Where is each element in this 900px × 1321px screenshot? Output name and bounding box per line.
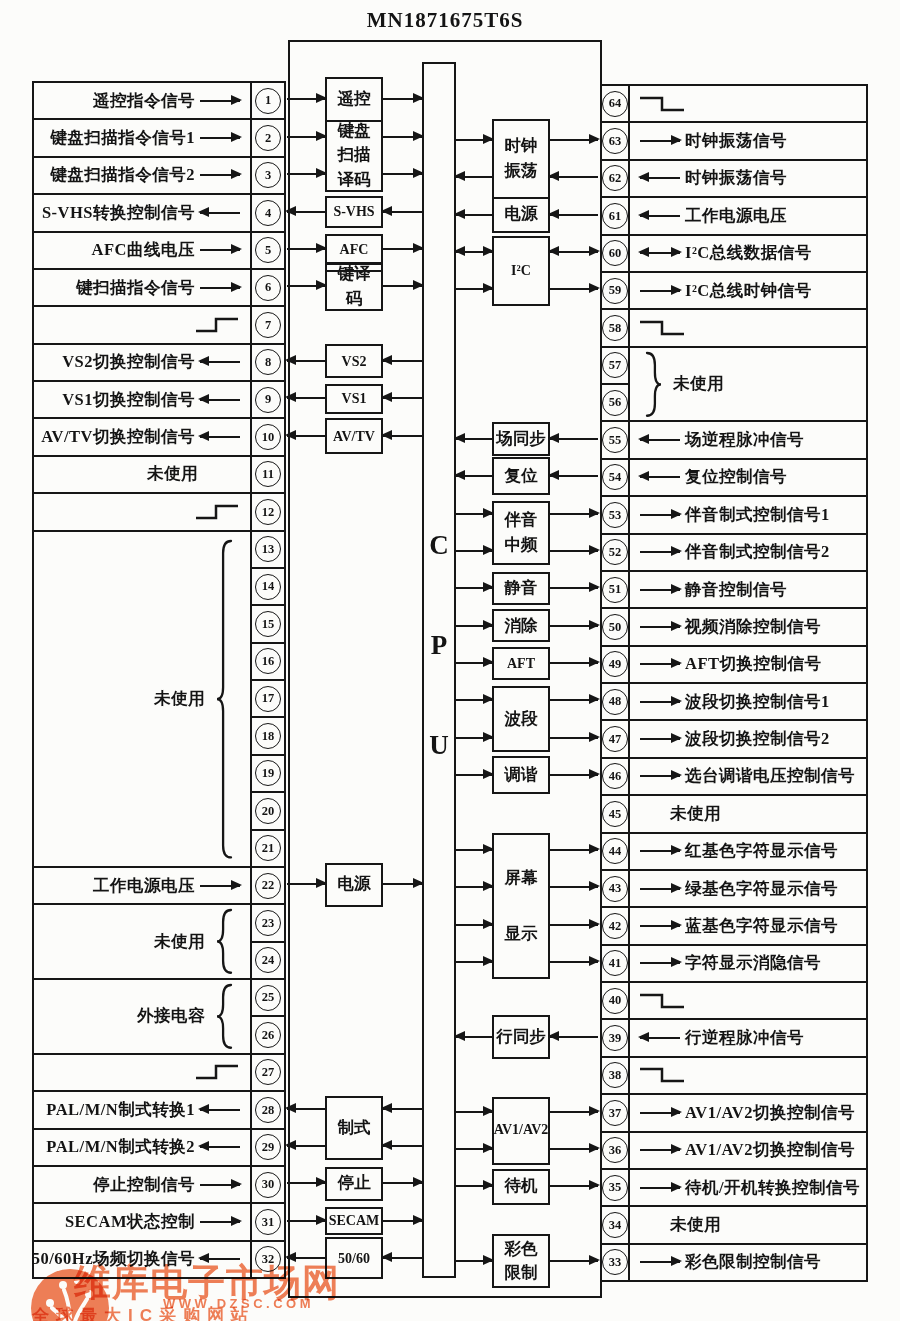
signal-arrow <box>287 360 325 362</box>
pin-number-cell: 63 <box>600 121 630 160</box>
cpu-letter-u: U <box>424 730 454 761</box>
pin-number: 16 <box>255 648 281 674</box>
signal-arrow <box>640 1187 680 1189</box>
pin-number: 64 <box>602 91 628 117</box>
pin-number: 36 <box>602 1137 628 1163</box>
pin-label-cell: 键扫描指令信号 <box>32 268 252 307</box>
pin-number-cell: 54 <box>600 458 630 497</box>
pin-label: AV/TV切换控制信号 <box>41 426 195 448</box>
pin-number: 58 <box>602 315 628 341</box>
pin-label-cell: 键盘扫描指令信号2 <box>32 156 252 195</box>
pin-label: 时钟振荡信号 <box>685 167 787 189</box>
signal-arrow <box>456 961 492 963</box>
pin-label: PAL/M/N制式转换2 <box>46 1136 195 1158</box>
function-block: VS2 <box>325 344 383 378</box>
signal-arrow <box>640 1261 680 1263</box>
signal-arrow <box>550 139 598 141</box>
pin-label-cell: 静音控制信号 <box>628 570 868 609</box>
pin-number-cell: 19 <box>250 754 286 793</box>
signal-arrow <box>550 1185 598 1187</box>
signal-arrow <box>550 176 598 178</box>
pin-number-cell: 15 <box>250 604 286 643</box>
pin-number-cell: 52 <box>600 533 630 572</box>
signal-arrow <box>550 1036 598 1038</box>
pin-number: 46 <box>602 763 628 789</box>
pin-number-cell: 51 <box>600 570 630 609</box>
pin-label: 绿基色字符显示信号 <box>685 878 838 900</box>
signal-arrow <box>287 435 325 437</box>
signal-arrow <box>640 775 680 777</box>
pin-number: 9 <box>255 387 281 413</box>
signal-arrow <box>456 774 492 776</box>
pin-number: 49 <box>602 651 628 677</box>
pin-number: 59 <box>602 278 628 304</box>
pin-number-cell: 56 <box>600 383 630 422</box>
chip-title: MN1871675T6S <box>288 8 602 33</box>
pin-label: 未使用 <box>673 373 724 395</box>
signal-arrow <box>383 285 422 287</box>
pin-label: 场逆程脉冲信号 <box>685 429 804 451</box>
signal-arrow <box>287 1257 325 1259</box>
pin-number: 15 <box>255 611 281 637</box>
signal-arrow <box>383 435 422 437</box>
pin-label: 复位控制信号 <box>685 466 787 488</box>
pin-number-cell: 50 <box>600 607 630 646</box>
pin-label: 波段切换控制信号2 <box>685 728 830 750</box>
pin-label-cell: 彩色限制控制信号 <box>628 1243 868 1282</box>
signal-arrow <box>456 886 492 888</box>
pin-number: 22 <box>255 873 281 899</box>
signal-arrow <box>456 924 492 926</box>
group-brace-icon <box>215 539 233 859</box>
signal-arrow <box>550 774 598 776</box>
signal-arrow <box>640 925 680 927</box>
pin-number-cell: 25 <box>250 978 286 1017</box>
signal-arrow <box>456 176 492 178</box>
pin-label-cell <box>32 305 252 344</box>
signal-arrow <box>640 290 680 292</box>
signal-arrow <box>200 1184 240 1186</box>
pin-number: 21 <box>255 835 281 861</box>
pin-label: AV1/AV2切换控制信号 <box>685 1102 855 1124</box>
pin-number-cell: 29 <box>250 1128 286 1167</box>
pin-number-cell: 55 <box>600 420 630 459</box>
pin-number-cell: 57 <box>600 346 630 385</box>
signal-arrow <box>456 737 492 739</box>
pin-label: SECAM状态控制 <box>65 1211 195 1233</box>
signal-arrow <box>383 1220 422 1222</box>
signal-arrow <box>200 249 240 251</box>
pin-number: 57 <box>602 352 628 378</box>
pin-number-cell: 62 <box>600 159 630 198</box>
function-block: 复位 <box>492 457 550 495</box>
signal-arrow <box>287 285 325 287</box>
pin-number: 12 <box>255 499 281 525</box>
function-block: 行同步 <box>492 1015 550 1059</box>
signal-arrow <box>456 513 492 515</box>
function-block: 调谐 <box>492 756 550 794</box>
signal-arrow <box>550 288 598 290</box>
pin-label-cell: PAL/M/N制式转换1 <box>32 1090 252 1129</box>
pin-label-cell: 行逆程脉冲信号 <box>628 1018 868 1057</box>
pin-number-cell: 49 <box>600 645 630 684</box>
pin-label: 蓝基色字符显示信号 <box>685 915 838 937</box>
pin-label-cell: 场逆程脉冲信号 <box>628 420 868 459</box>
pin-number-cell: 23 <box>250 903 286 942</box>
pin-label-cell: 字符显示消隐信号 <box>628 944 868 983</box>
signal-arrow <box>550 886 598 888</box>
function-block: 时钟 振荡 <box>492 119 550 199</box>
pin-label-cell: VS2切换控制信号 <box>32 343 252 382</box>
signal-arrow <box>640 626 680 628</box>
pin-number: 33 <box>602 1249 628 1275</box>
cpu-letter-c: C <box>424 530 454 561</box>
pin-number-cell: 58 <box>600 308 630 347</box>
pin-number-cell: 14 <box>250 567 286 606</box>
pin-label: 彩色限制控制信号 <box>685 1251 821 1273</box>
signal-arrow <box>456 1185 492 1187</box>
signal-arrow <box>200 885 240 887</box>
pin-number: 61 <box>602 203 628 229</box>
pin-label-cell: AV1/AV2切换控制信号 <box>628 1131 868 1170</box>
pin-number: 25 <box>255 985 281 1011</box>
pin-number: 56 <box>602 390 628 416</box>
pin-number: 26 <box>255 1022 281 1048</box>
pin-label-cell: AV1/AV2切换控制信号 <box>628 1093 868 1132</box>
pin-label-cell: 时钟振荡信号 <box>628 121 868 160</box>
signal-arrow <box>550 662 598 664</box>
pin-label: VS1切换控制信号 <box>62 389 195 411</box>
pin-label-cell: 时钟振荡信号 <box>628 159 868 198</box>
cpu-bar: C P U <box>422 62 456 1278</box>
pin-label: 伴音制式控制信号2 <box>685 541 830 563</box>
pin-label-cell <box>628 84 868 123</box>
signal-arrow <box>640 1037 680 1039</box>
pin-label: 停止控制信号 <box>93 1174 195 1196</box>
function-block: 彩色 限制 <box>492 1234 550 1288</box>
pin-label-cell: 50/60Hz场频切换信号 <box>32 1240 252 1279</box>
pin-number: 27 <box>255 1059 281 1085</box>
signal-arrow <box>640 701 680 703</box>
pin-label: 键盘扫描指令信号1 <box>50 127 195 149</box>
pin-label-cell: 工作电源电压 <box>32 866 252 905</box>
pin-label-cell: PAL/M/N制式转换2 <box>32 1128 252 1167</box>
diagram-canvas: MN1871675T6S 遥控指令信号1键盘扫描指令信号12键盘扫描指令信号23… <box>0 0 900 1321</box>
signal-arrow <box>456 625 492 627</box>
pin-label-cell <box>628 1056 868 1095</box>
function-block: I²C <box>492 236 550 306</box>
pin-label-cell <box>628 308 868 347</box>
pin-label: AFC曲线电压 <box>92 239 195 261</box>
signal-arrow <box>456 849 492 851</box>
pin-number-cell: 21 <box>250 829 286 868</box>
pin-number-cell: 28 <box>250 1090 286 1129</box>
pin-label: 键扫描指令信号 <box>76 277 195 299</box>
signal-arrow <box>640 1149 680 1151</box>
pin-number-cell: 9 <box>250 380 286 419</box>
pin-number-cell: 48 <box>600 682 630 721</box>
function-block: 电源 <box>492 197 550 233</box>
pin-number: 42 <box>602 913 628 939</box>
pin-number: 63 <box>602 128 628 154</box>
function-block: 静音 <box>492 572 550 605</box>
pin-number: 53 <box>602 502 628 528</box>
pin-label-cell: 外接电容 <box>32 978 252 1055</box>
pin-number-cell: 3 <box>250 156 286 195</box>
pin-label: I²C总线时钟信号 <box>685 280 812 302</box>
pin-number: 45 <box>602 801 628 827</box>
signal-arrow <box>383 1182 422 1184</box>
signal-arrow <box>640 514 680 516</box>
signal-arrow <box>456 251 492 253</box>
signal-arrow <box>383 1145 422 1147</box>
signal-arrow <box>550 1148 598 1150</box>
pin-number: 19 <box>255 760 281 786</box>
pin-number: 32 <box>255 1246 281 1272</box>
pin-number-cell: 36 <box>600 1131 630 1170</box>
signal-arrow <box>383 173 422 175</box>
pin-number: 51 <box>602 577 628 603</box>
signal-arrow <box>383 211 422 213</box>
pin-label-cell: VS1切换控制信号 <box>32 380 252 419</box>
pin-label-cell <box>32 1053 252 1092</box>
function-block: 消除 <box>492 609 550 642</box>
pin-number-cell: 7 <box>250 305 286 344</box>
function-block: AFC <box>325 234 383 264</box>
signal-arrow <box>456 139 492 141</box>
pin-number: 40 <box>602 988 628 1014</box>
pin-number: 39 <box>602 1025 628 1051</box>
pin-number: 3 <box>255 162 281 188</box>
pin-number: 62 <box>602 165 628 191</box>
function-block: AFT <box>492 647 550 680</box>
pin-label-cell: 未使用 <box>628 1205 868 1244</box>
signal-arrow <box>383 360 422 362</box>
signal-arrow <box>640 738 680 740</box>
signal-arrow <box>287 136 325 138</box>
pin-number: 31 <box>255 1209 281 1235</box>
pin-label-cell: 遥控指令信号 <box>32 81 252 120</box>
pin-number-cell: 61 <box>600 196 630 235</box>
function-block: SECAM <box>325 1207 383 1235</box>
pin-label: 时钟振荡信号 <box>685 130 787 152</box>
pin-number: 60 <box>602 240 628 266</box>
signal-arrow <box>456 438 492 440</box>
signal-arrow <box>550 699 598 701</box>
pin-number-cell: 41 <box>600 944 630 983</box>
signal-arrow <box>287 248 325 250</box>
pin-number: 13 <box>255 536 281 562</box>
pulse-waveform-icon <box>638 91 686 117</box>
pin-label-cell: 波段切换控制信号1 <box>628 682 868 721</box>
pin-number-cell: 45 <box>600 794 630 833</box>
signal-arrow <box>200 100 240 102</box>
pin-label: 静音控制信号 <box>685 579 787 601</box>
pin-number-cell: 64 <box>600 84 630 123</box>
pin-number: 17 <box>255 686 281 712</box>
pulse-waveform-icon <box>638 315 686 341</box>
function-block: VS1 <box>325 384 383 414</box>
pin-number: 37 <box>602 1100 628 1126</box>
pin-number-cell: 2 <box>250 118 286 157</box>
pin-number: 50 <box>602 614 628 640</box>
pulse-waveform-icon <box>638 1062 686 1088</box>
watermark-slogan-text: 全球最大IC采购网站 <box>32 1304 255 1321</box>
pin-number: 6 <box>255 275 281 301</box>
pin-label: 未使用 <box>147 463 198 485</box>
pin-label: VS2切换控制信号 <box>62 351 195 373</box>
function-block: S-VHS <box>325 196 383 228</box>
signal-arrow <box>640 962 680 964</box>
pin-number: 23 <box>255 910 281 936</box>
signal-arrow <box>640 252 680 254</box>
signal-arrow <box>456 1036 492 1038</box>
pin-label: 待机/开机转换控制信号 <box>685 1177 860 1199</box>
pin-label: 未使用 <box>154 931 205 953</box>
signal-arrow <box>640 589 680 591</box>
pulse-waveform-icon <box>194 1059 242 1085</box>
pin-number: 34 <box>602 1212 628 1238</box>
pin-number: 44 <box>602 838 628 864</box>
function-block: AV/TV <box>325 418 383 454</box>
signal-arrow <box>456 1260 492 1262</box>
pin-number-cell: 6 <box>250 268 286 307</box>
pin-number-cell: 38 <box>600 1056 630 1095</box>
signal-arrow <box>640 177 680 179</box>
signal-arrow <box>550 924 598 926</box>
pin-label: S-VHS转换控制信号 <box>42 202 195 224</box>
pin-number-cell: 16 <box>250 642 286 681</box>
signal-arrow <box>456 587 492 589</box>
signal-arrow <box>456 1111 492 1113</box>
pulse-waveform-icon <box>194 312 242 338</box>
pin-number: 18 <box>255 723 281 749</box>
pin-number-cell: 18 <box>250 716 286 755</box>
pin-label: 选台调谐电压控制信号 <box>685 765 855 787</box>
signal-arrow <box>456 214 492 216</box>
signal-arrow <box>200 1221 240 1223</box>
pin-number: 30 <box>255 1172 281 1198</box>
pin-number: 43 <box>602 876 628 902</box>
pin-label-cell: S-VHS转换控制信号 <box>32 193 252 232</box>
pin-label: 工作电源电压 <box>685 205 787 227</box>
pin-number: 2 <box>255 125 281 151</box>
pin-number-cell: 35 <box>600 1168 630 1207</box>
pin-number: 10 <box>255 424 281 450</box>
pin-number: 7 <box>255 312 281 338</box>
signal-arrow <box>640 476 680 478</box>
function-block: 停止 <box>325 1167 383 1201</box>
signal-arrow <box>550 550 598 552</box>
signal-arrow <box>456 550 492 552</box>
pin-number: 54 <box>602 464 628 490</box>
pin-number-cell: 53 <box>600 495 630 534</box>
pin-number: 1 <box>255 88 281 114</box>
signal-arrow <box>383 883 422 885</box>
pin-label-cell: SECAM状态控制 <box>32 1202 252 1241</box>
signal-arrow <box>550 849 598 851</box>
pin-label: PAL/M/N制式转换1 <box>46 1099 195 1121</box>
signal-arrow <box>456 1148 492 1150</box>
signal-arrow <box>287 397 325 399</box>
signal-arrow <box>200 287 240 289</box>
pin-number-cell: 33 <box>600 1243 630 1282</box>
signal-arrow <box>640 888 680 890</box>
pin-number: 20 <box>255 798 281 824</box>
signal-arrow <box>287 173 325 175</box>
pin-number-cell: 44 <box>600 832 630 871</box>
pin-number: 41 <box>602 950 628 976</box>
pin-label-cell: 蓝基色字符显示信号 <box>628 906 868 945</box>
signal-arrow <box>550 1111 598 1113</box>
signal-arrow <box>200 361 240 363</box>
function-block: 伴音 中频 <box>492 501 550 565</box>
pin-label-cell: 伴音制式控制信号1 <box>628 495 868 534</box>
function-block: 电源 <box>325 863 383 907</box>
pin-label: 50/60Hz场频切换信号 <box>32 1248 195 1270</box>
group-brace-icon <box>645 351 663 418</box>
signal-arrow <box>383 397 422 399</box>
signal-arrow <box>383 98 422 100</box>
signal-arrow <box>383 136 422 138</box>
group-brace-icon <box>215 983 233 1050</box>
pin-label: 伴音制式控制信号1 <box>685 504 830 526</box>
signal-arrow <box>550 625 598 627</box>
pin-number-cell: 5 <box>250 231 286 270</box>
pin-number-cell: 59 <box>600 271 630 310</box>
group-brace-icon <box>215 908 233 975</box>
pin-label-cell: 未使用 <box>628 794 868 833</box>
pin-label-cell: 键盘扫描指令信号1 <box>32 118 252 157</box>
watermark-url-text: WWW.DZSC.COM <box>163 1296 314 1311</box>
pin-label: 未使用 <box>670 803 721 825</box>
pin-number-cell: 32 <box>250 1240 286 1279</box>
pin-label-cell <box>628 981 868 1020</box>
pin-label-cell: 伴音制式控制信号2 <box>628 533 868 572</box>
pin-label-cell: I²C总线时钟信号 <box>628 271 868 310</box>
signal-arrow <box>456 475 492 477</box>
pin-label-cell: 视频消除控制信号 <box>628 607 868 646</box>
pin-label: 未使用 <box>154 688 205 710</box>
signal-arrow <box>200 436 240 438</box>
pin-number-cell: 43 <box>600 869 630 908</box>
function-block: 50/60 <box>325 1237 383 1279</box>
pin-number: 38 <box>602 1062 628 1088</box>
pin-label: AV1/AV2切换控制信号 <box>685 1139 855 1161</box>
function-block: 屏幕 显示 <box>492 833 550 979</box>
pin-label: 外接电容 <box>137 1005 205 1027</box>
pin-number-cell: 26 <box>250 1015 286 1054</box>
pin-number-cell: 12 <box>250 492 286 531</box>
pin-number: 11 <box>255 461 281 487</box>
pin-label: 未使用 <box>670 1214 721 1236</box>
signal-arrow <box>456 662 492 664</box>
pulse-waveform-icon <box>638 988 686 1014</box>
pin-number-cell: 17 <box>250 679 286 718</box>
pin-number-cell: 20 <box>250 791 286 830</box>
signal-arrow <box>383 248 422 250</box>
signal-arrow <box>640 215 680 217</box>
signal-arrow <box>550 475 598 477</box>
signal-arrow <box>200 1146 240 1148</box>
pin-label-cell: 复位控制信号 <box>628 458 868 497</box>
pin-label: 遥控指令信号 <box>93 90 195 112</box>
pin-number-cell: 39 <box>600 1018 630 1057</box>
pin-label: 红基色字符显示信号 <box>685 840 838 862</box>
pin-label-cell: 未使用 <box>32 455 252 494</box>
signal-arrow <box>200 1109 240 1111</box>
function-block: 场同步 <box>492 422 550 456</box>
